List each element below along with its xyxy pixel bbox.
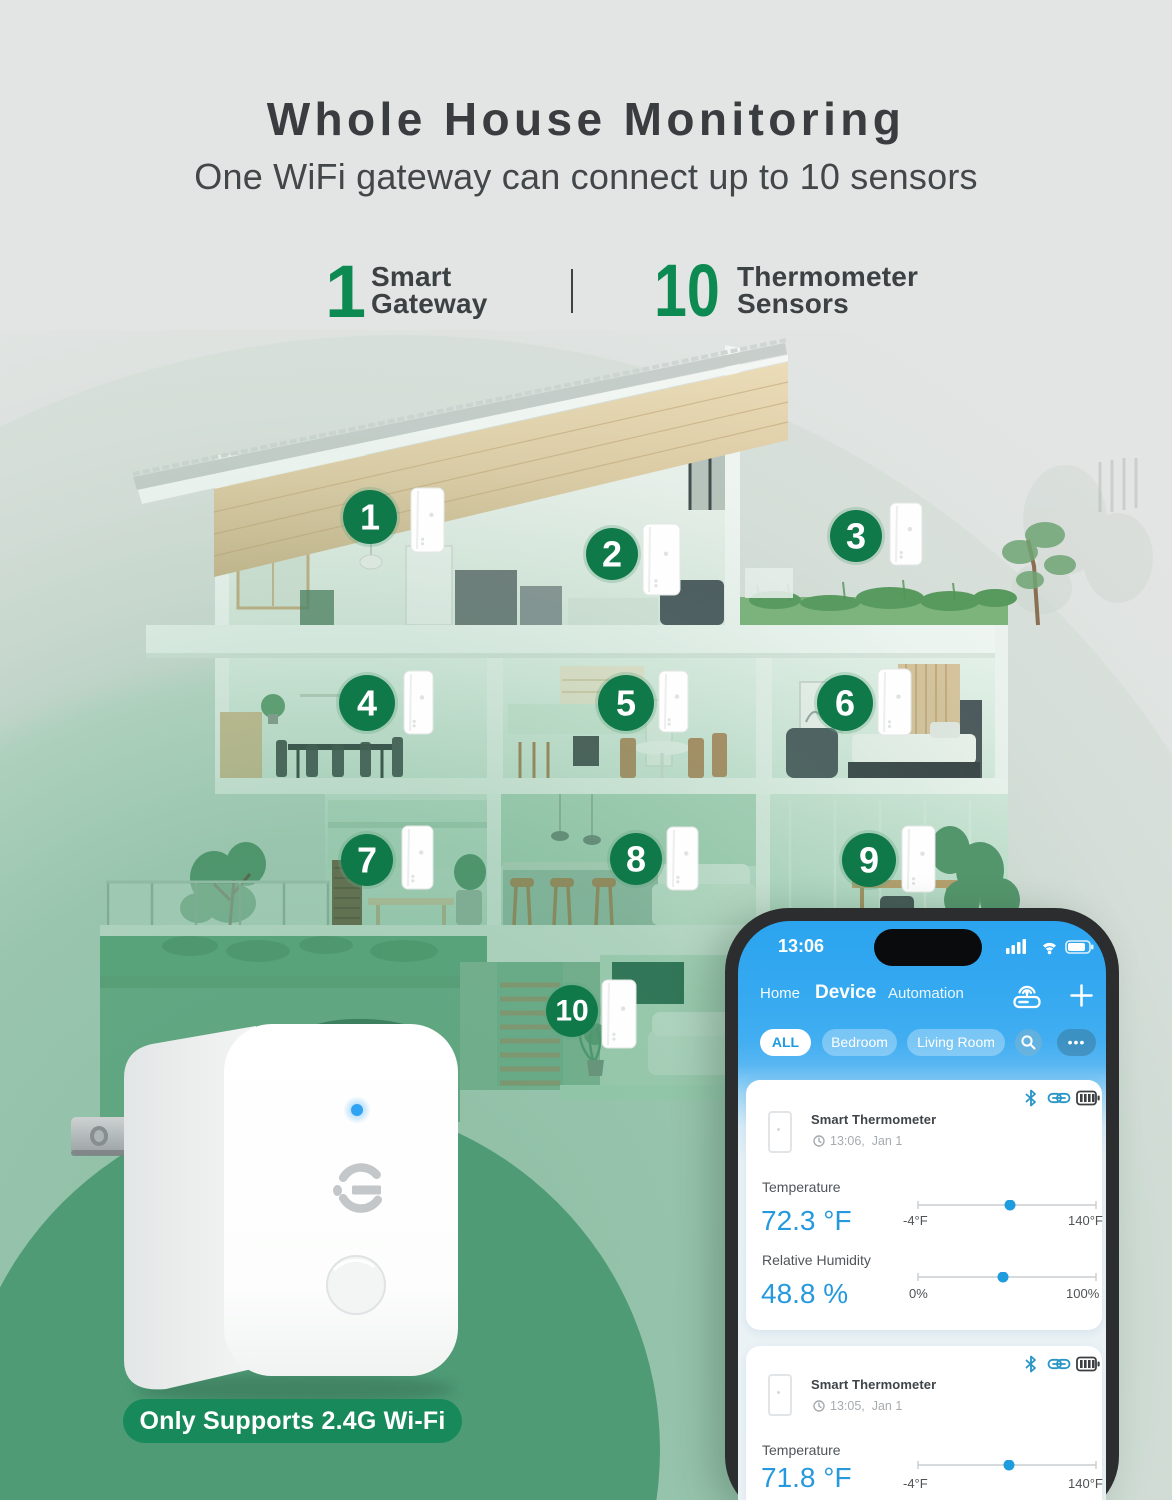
- svg-text:2: 2: [602, 534, 622, 575]
- svg-text:8: 8: [626, 839, 646, 880]
- svg-text:4: 4: [357, 683, 377, 724]
- svg-text:6: 6: [835, 683, 855, 724]
- svg-text:1: 1: [360, 497, 380, 538]
- svg-text:10: 10: [555, 995, 588, 1028]
- svg-text:7: 7: [357, 840, 377, 881]
- svg-text:5: 5: [616, 683, 636, 724]
- svg-text:9: 9: [859, 840, 879, 881]
- svg-text:3: 3: [846, 516, 866, 557]
